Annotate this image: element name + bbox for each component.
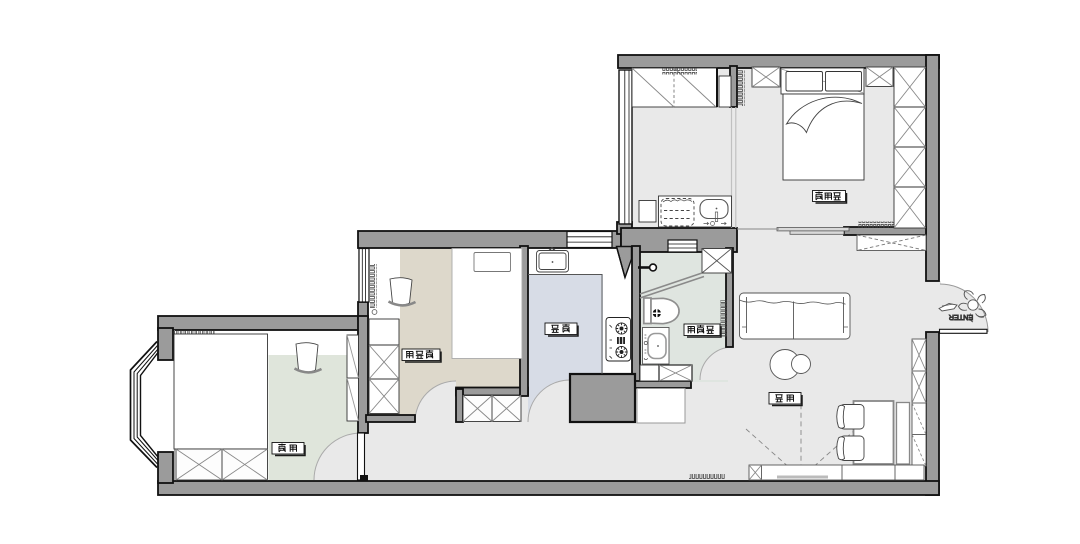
svg-text:ENTER: ENTER [949,313,973,322]
